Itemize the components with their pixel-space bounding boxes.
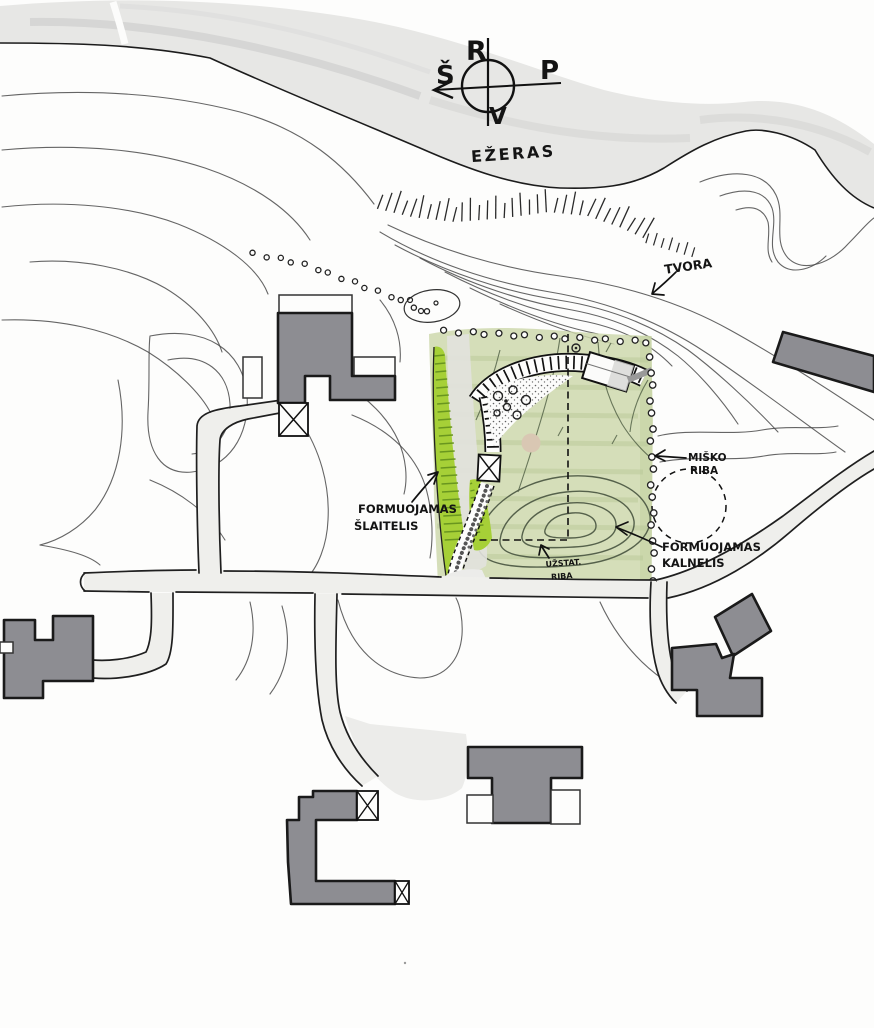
development-boundary-label-2: RIBA xyxy=(551,571,574,582)
tree-dot xyxy=(575,347,578,350)
fence-label: TVORA xyxy=(663,255,713,277)
compass-right-letter: P xyxy=(540,56,559,86)
building-outline-west xyxy=(243,357,262,398)
terrace-xbox xyxy=(477,454,500,481)
forest-boundary-arrow xyxy=(657,456,686,458)
southwest-lane xyxy=(93,593,173,678)
building-southwest xyxy=(0,616,93,698)
compass-bottom-letter: V xyxy=(489,104,507,130)
sketch-canvas: R P V Š EŽERAS TVORA MIŠKO RIBA FORMUOJA… xyxy=(0,0,874,1028)
ridge-hatching xyxy=(377,189,694,257)
sand-circle xyxy=(522,434,541,453)
forest-boundary-label-2: RIBA xyxy=(690,465,719,477)
stray-dot xyxy=(404,962,406,964)
building-south-c xyxy=(287,791,409,904)
building-south-t xyxy=(467,747,582,824)
formed-slope-arrow xyxy=(412,474,436,502)
dashed-circle xyxy=(652,469,726,543)
forest-boundary-label-1: MIŠKO xyxy=(688,451,727,464)
formed-slope-label-1: FORMUOJAMAS xyxy=(358,502,457,516)
formed-hill-label-1: FORMUOJAMAS xyxy=(662,540,761,554)
building-northwest xyxy=(278,295,395,436)
formed-slope-label-2: ŠLAITELIS xyxy=(354,518,418,533)
formed-hill-label-2: KALNELIS xyxy=(662,556,725,570)
building-northeast xyxy=(773,332,874,392)
shrub-dot xyxy=(504,399,508,403)
compass-top-letter: R xyxy=(466,36,487,67)
compass-left-letter: Š xyxy=(436,59,455,91)
site-plan-sketch: R P V Š EŽERAS TVORA MIŠKO RIBA FORMUOJA… xyxy=(0,0,874,1028)
tree-clump-outline xyxy=(402,286,462,325)
lake xyxy=(0,0,874,208)
building-southeast xyxy=(672,594,771,716)
